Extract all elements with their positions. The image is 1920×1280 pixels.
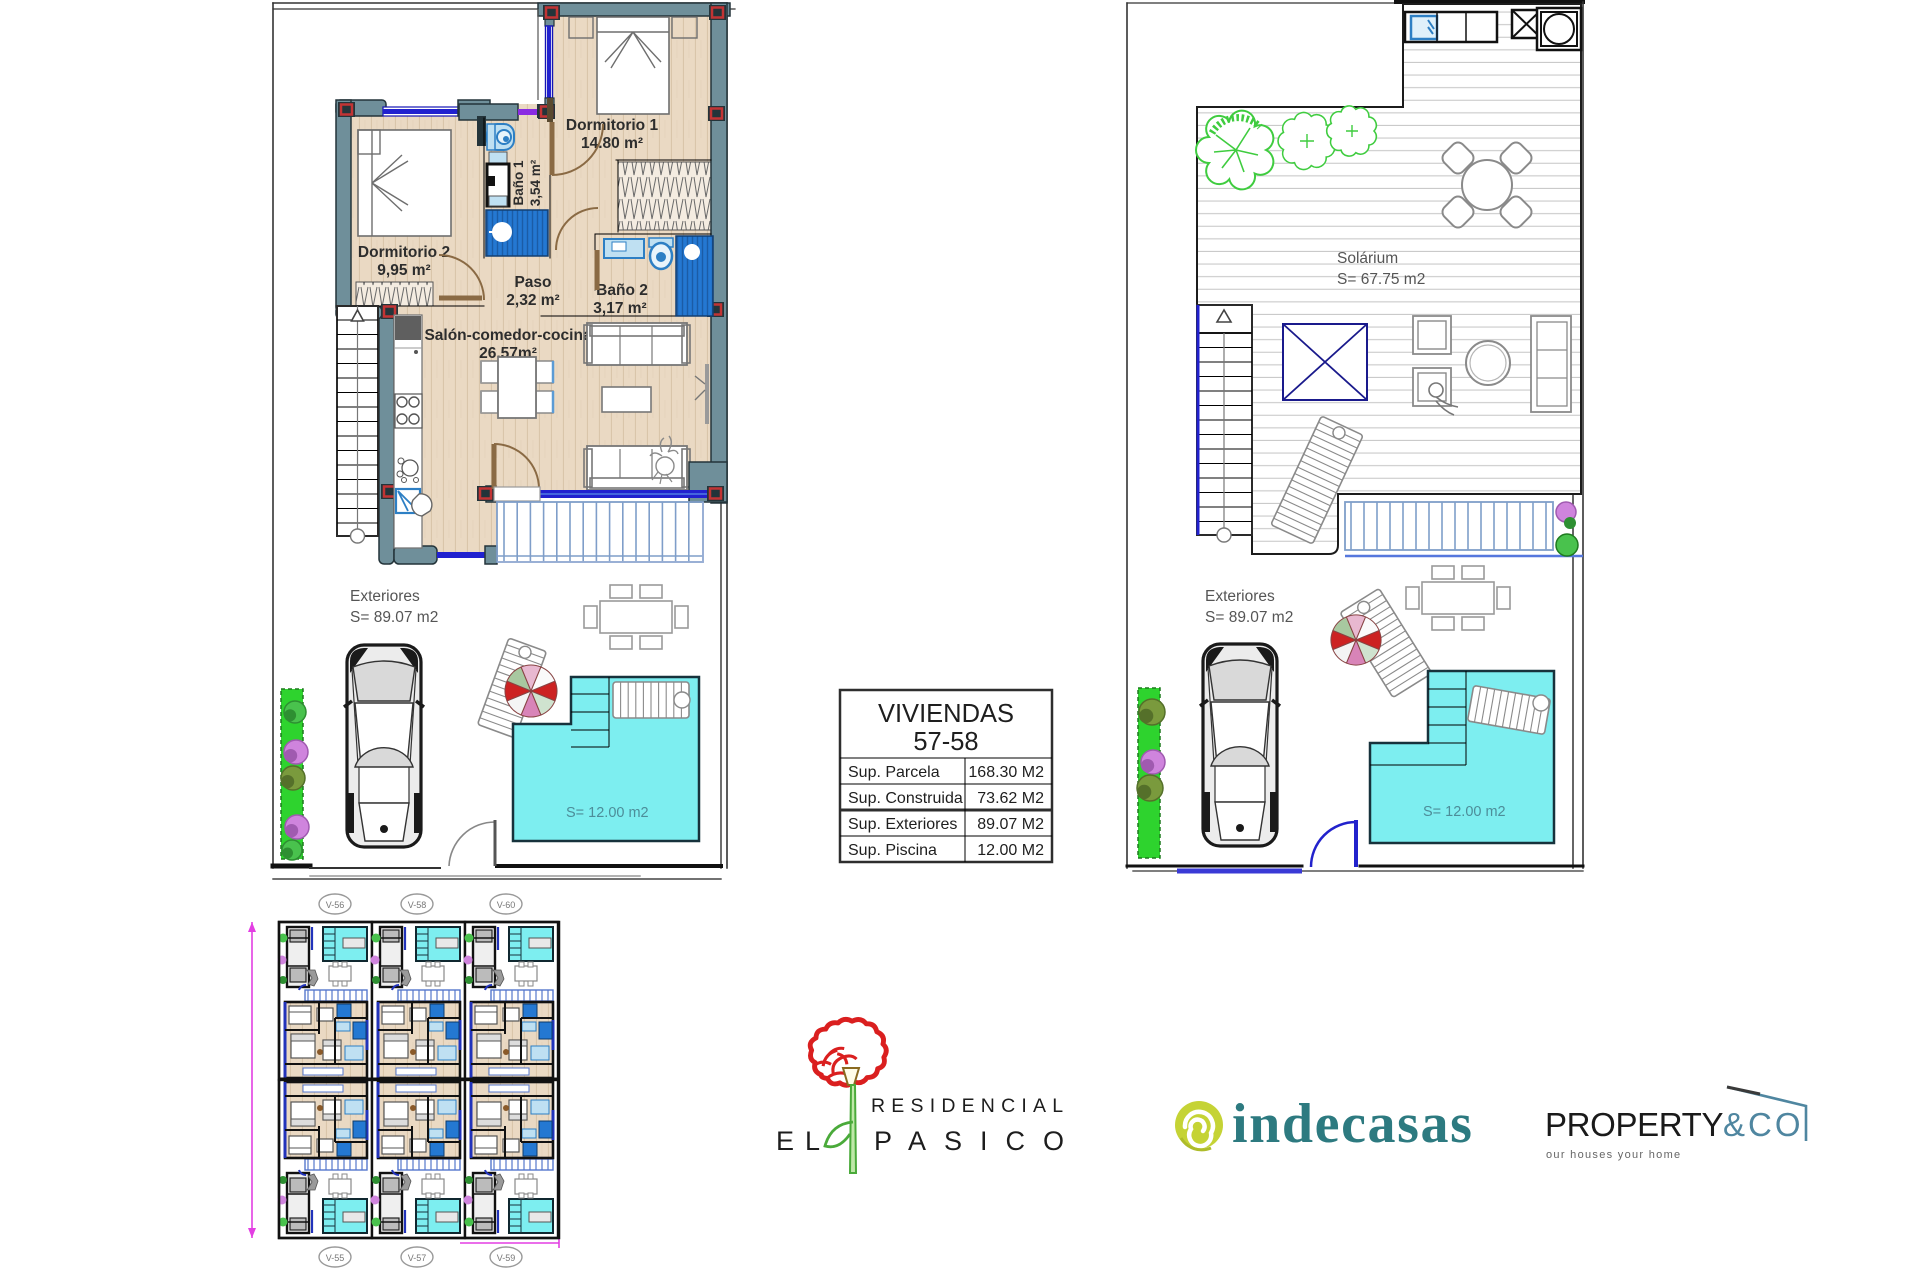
svg-text:RESIDENCIAL: RESIDENCIAL [871, 1095, 1069, 1117]
svg-text:Sup. Exteriores: Sup. Exteriores [848, 816, 957, 833]
svg-text:V-57: V-57 [408, 1253, 427, 1263]
svg-text:V-59: V-59 [497, 1253, 516, 1263]
svg-text:Solárium: Solárium [1337, 250, 1398, 267]
svg-text:89.07 M2: 89.07 M2 [977, 816, 1044, 833]
svg-text:V-60: V-60 [497, 900, 516, 910]
svg-text:Salón-comedor-cocina: Salón-comedor-cocina [424, 327, 591, 344]
svg-text:V-55: V-55 [326, 1253, 345, 1263]
svg-text:Paso: Paso [514, 274, 551, 291]
svg-text:Dormitorio 2: Dormitorio 2 [358, 244, 450, 261]
svg-text:&CO: &CO [1723, 1106, 1800, 1143]
svg-text:Baño 2: Baño 2 [596, 282, 648, 299]
svg-text:Baño 1: Baño 1 [511, 160, 526, 206]
svg-text:9,95 m²: 9,95 m² [377, 262, 430, 279]
svg-text:57-58: 57-58 [913, 728, 978, 756]
svg-text:V-58: V-58 [408, 900, 427, 910]
svg-text:EL: EL [776, 1126, 831, 1156]
svg-text:VIVIENDAS: VIVIENDAS [878, 700, 1014, 728]
svg-text:S= 89.07 m2: S= 89.07 m2 [350, 609, 438, 626]
svg-text:Sup. Piscina: Sup. Piscina [848, 842, 937, 859]
svg-text:2,32 m²: 2,32 m² [506, 292, 559, 309]
svg-text:168.30 M2: 168.30 M2 [968, 764, 1044, 781]
svg-text:3,17 m²: 3,17 m² [593, 300, 646, 317]
svg-text:PASICO: PASICO [874, 1126, 1082, 1156]
svg-text:indecasas: indecasas [1232, 1093, 1474, 1155]
svg-text:Exteriores: Exteriores [1205, 588, 1275, 605]
svg-text:73.62 M2: 73.62 M2 [977, 790, 1044, 807]
svg-text:S= 12.00 m2: S= 12.00 m2 [1423, 804, 1506, 820]
svg-text:14.80 m²: 14.80 m² [581, 135, 643, 152]
svg-text:our houses your home: our houses your home [1546, 1149, 1681, 1161]
svg-text:Sup. Construida: Sup. Construida [848, 790, 963, 807]
svg-text:S= 67.75 m2: S= 67.75 m2 [1337, 271, 1425, 288]
svg-text:12.00 M2: 12.00 M2 [977, 842, 1044, 859]
svg-text:S= 89.07 m2: S= 89.07 m2 [1205, 609, 1293, 626]
svg-text:Dormitorio 1: Dormitorio 1 [566, 117, 659, 134]
svg-text:PROPERTY: PROPERTY [1545, 1106, 1723, 1143]
svg-text:V-56: V-56 [326, 900, 345, 910]
svg-text:Sup. Parcela: Sup. Parcela [848, 764, 940, 781]
svg-text:Exteriores: Exteriores [350, 588, 420, 605]
svg-text:S= 12.00 m2: S= 12.00 m2 [566, 805, 649, 821]
svg-text:3,54 m²: 3,54 m² [528, 159, 543, 206]
